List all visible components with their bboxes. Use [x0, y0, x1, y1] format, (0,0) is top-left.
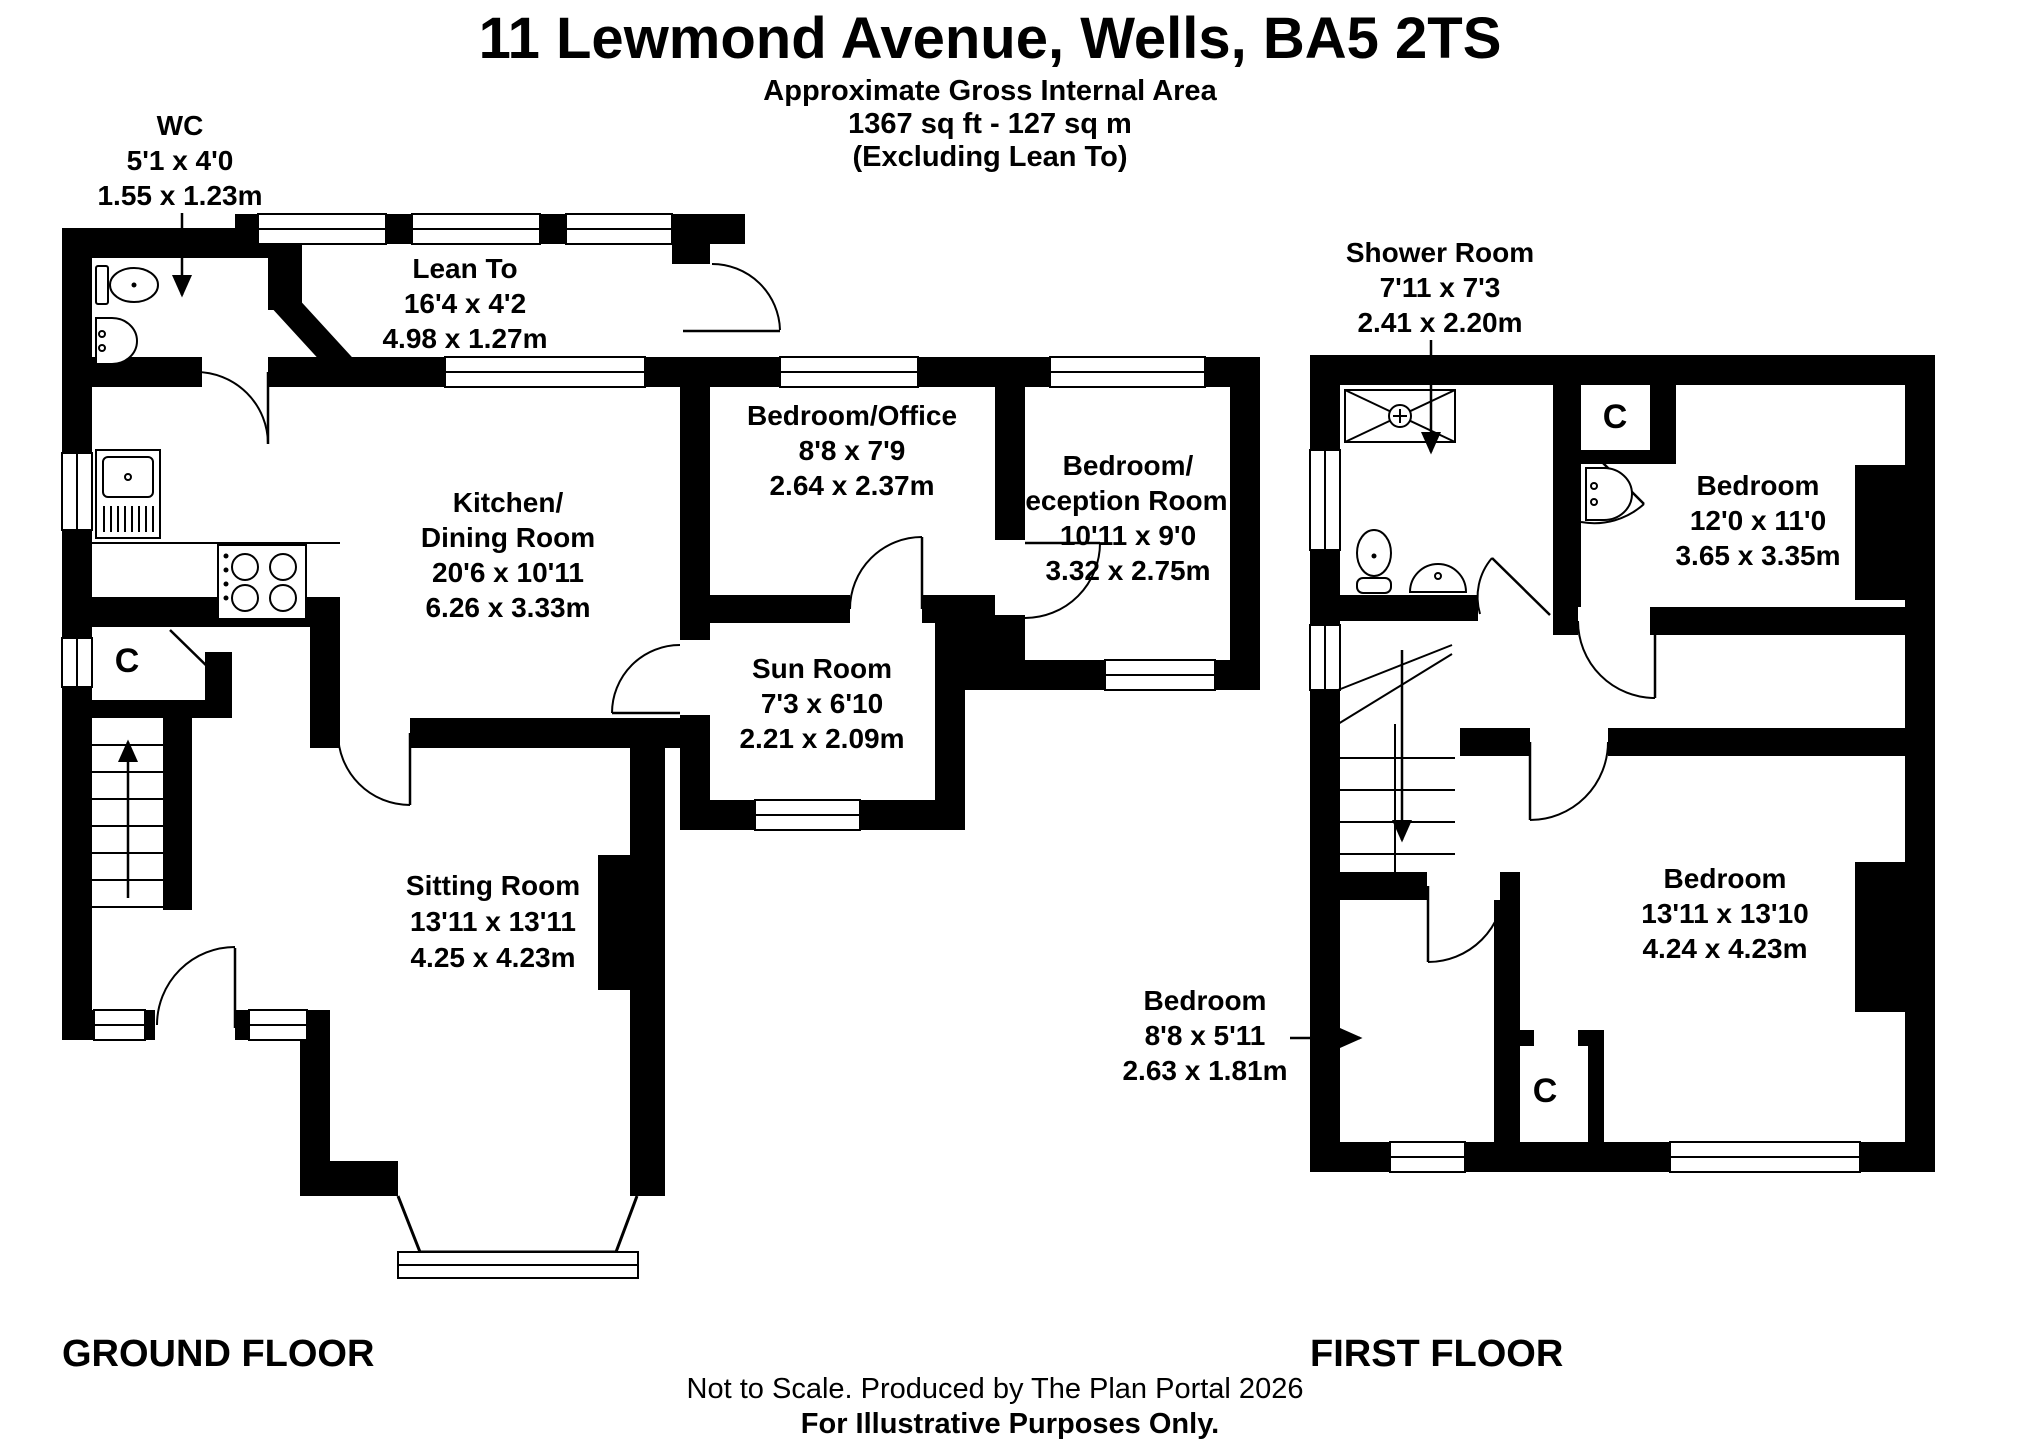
window	[1310, 450, 1340, 550]
door-bedroom-front	[1578, 607, 1655, 698]
first-floor-title: FIRST FLOOR	[1310, 1333, 1563, 1375]
svg-text:4.24 x 4.23m: 4.24 x 4.23m	[1642, 933, 1807, 964]
label-sun-room: Sun Room 7'3 x 6'10 2.21 x 2.09m	[739, 653, 904, 754]
header-area: 1367 sq ft - 127 sq m	[848, 108, 1132, 140]
svg-text:16'4 x 4'2: 16'4 x 4'2	[404, 288, 526, 319]
window	[62, 453, 92, 530]
svg-text:Sun Room: Sun Room	[752, 653, 892, 684]
first-floor-doors	[1427, 452, 1655, 962]
hob-icon	[218, 545, 306, 619]
shower-tray-icon	[1345, 390, 1455, 442]
svg-text:2.21 x 2.09m: 2.21 x 2.09m	[739, 723, 904, 754]
footer: Not to Scale. Produced by The Plan Porta…	[687, 1373, 1304, 1440]
door-bedroom-small	[1427, 872, 1504, 962]
stairs-ground	[92, 742, 163, 907]
footer-disclaimer: Not to Scale. Produced by The Plan Porta…	[687, 1373, 1304, 1405]
window	[445, 357, 645, 387]
kitchen-sink-icon	[96, 450, 160, 538]
svg-text:Bedroom: Bedroom	[1664, 863, 1787, 894]
floorplan-drawing: 11 Lewmond Avenue, Wells, BA5 2TS Approx…	[0, 0, 2025, 1441]
toilet-icon	[1357, 530, 1391, 593]
svg-text:8'8 x 7'9: 8'8 x 7'9	[799, 435, 906, 466]
door-wc	[196, 357, 268, 444]
door-shower-room	[1478, 558, 1553, 621]
ground-floor-title: GROUND FLOOR	[62, 1333, 374, 1375]
svg-text:8'8 x 5'11: 8'8 x 5'11	[1145, 1020, 1266, 1051]
svg-text:5'1 x 4'0: 5'1 x 4'0	[127, 145, 234, 176]
svg-text:10'11 x 9'0: 10'11 x 9'0	[1060, 520, 1196, 551]
label-lean-to: Lean To 16'4 x 4'2 4.98 x 1.27m	[382, 253, 547, 354]
window	[412, 214, 540, 244]
door-bedroom-back	[1530, 728, 1608, 820]
label-bedroom-reception: Bedroom/ Reception Room 2 10'11 x 9'0 3.…	[1005, 450, 1251, 586]
svg-text:Bedroom: Bedroom	[1697, 470, 1820, 501]
window	[1670, 1142, 1860, 1172]
svg-text:7'3 x 6'10: 7'3 x 6'10	[761, 688, 883, 719]
bay-window	[398, 1196, 638, 1278]
svg-text:2.63 x 1.81m: 2.63 x 1.81m	[1122, 1055, 1287, 1086]
window	[1105, 660, 1215, 690]
label-wc: WC 5'1 x 4'0 1.55 x 1.23m	[97, 110, 262, 295]
floorplan-page: 11 Lewmond Avenue, Wells, BA5 2TS Approx…	[0, 0, 2025, 1441]
cupboard-label-first-top: C	[1603, 398, 1628, 436]
page-title: 11 Lewmond Avenue, Wells, BA5 2TS	[479, 6, 1502, 71]
svg-text:Reception Room 2: Reception Room 2	[1005, 485, 1251, 516]
window	[755, 800, 860, 830]
door-kitchen-sunroom	[612, 640, 710, 715]
svg-text:20'6 x 10'11: 20'6 x 10'11	[432, 557, 584, 588]
label-sitting-room: Sitting Room 13'11 x 13'11 4.25 x 4.23m	[406, 870, 580, 973]
svg-text:3.32 x 2.75m: 3.32 x 2.75m	[1045, 555, 1210, 586]
header-subtitle: Approximate Gross Internal Area	[763, 75, 1217, 107]
window	[1050, 357, 1205, 387]
header-exclusion: (Excluding Lean To)	[853, 141, 1128, 173]
cupboard-label-first-bottom: C	[1533, 1072, 1558, 1110]
svg-text:Dining Room: Dining Room	[421, 522, 595, 553]
stairs-first	[1335, 645, 1455, 872]
svg-text:13'11 x 13'11: 13'11 x 13'11	[410, 906, 576, 937]
svg-text:2.64 x 2.37m: 2.64 x 2.37m	[769, 470, 934, 501]
label-kitchen: Kitchen/ Dining Room 20'6 x 10'11 6.26 x…	[421, 487, 595, 623]
svg-text:4.25 x 4.23m: 4.25 x 4.23m	[410, 942, 575, 973]
window	[249, 1010, 307, 1040]
door-kitchen-sitting	[338, 718, 410, 805]
window	[1310, 625, 1340, 690]
svg-text:Bedroom: Bedroom	[1144, 985, 1267, 1016]
sink-icon	[96, 318, 137, 364]
door-front	[155, 947, 235, 1040]
svg-text:7'11 x 7'3: 7'11 x 7'3	[1380, 272, 1501, 303]
door-lean-to	[683, 264, 780, 331]
svg-text:Bedroom/Office: Bedroom/Office	[747, 400, 957, 431]
svg-text:13'11 x 13'10: 13'11 x 13'10	[1641, 898, 1808, 929]
window	[1390, 1142, 1465, 1172]
svg-text:WC: WC	[157, 110, 204, 141]
cupboard-label-ground: C	[115, 642, 140, 680]
window	[94, 1010, 145, 1040]
toilet-icon	[96, 266, 158, 304]
svg-text:4.98 x 1.27m: 4.98 x 1.27m	[382, 323, 547, 354]
svg-text:12'0 x 11'0: 12'0 x 11'0	[1690, 505, 1826, 536]
window	[62, 638, 92, 687]
label-bedroom-back: Bedroom 13'11 x 13'10 4.24 x 4.23m	[1641, 863, 1808, 964]
window	[780, 357, 918, 387]
svg-text:6.26 x 3.33m: 6.26 x 3.33m	[425, 592, 590, 623]
bedroom-sink-icon	[1586, 468, 1632, 520]
svg-text:1.55 x 1.23m: 1.55 x 1.23m	[97, 180, 262, 211]
header: 11 Lewmond Avenue, Wells, BA5 2TS Approx…	[479, 6, 1502, 173]
door-office	[850, 537, 922, 623]
footer-illustrative: For Illustrative Purposes Only.	[801, 1408, 1219, 1440]
label-bedroom-front: Bedroom 12'0 x 11'0 3.65 x 3.35m	[1675, 470, 1840, 571]
svg-text:2.41 x 2.20m: 2.41 x 2.20m	[1357, 307, 1522, 338]
svg-text:Shower Room: Shower Room	[1346, 237, 1534, 268]
window	[258, 214, 386, 244]
svg-text:Sitting Room: Sitting Room	[406, 870, 580, 901]
window	[566, 214, 672, 244]
svg-text:Lean To: Lean To	[412, 253, 517, 284]
label-bedroom-office: Bedroom/Office 8'8 x 7'9 2.64 x 2.37m	[747, 400, 957, 501]
sink-icon	[1410, 564, 1466, 592]
svg-text:3.65 x 3.35m: 3.65 x 3.35m	[1675, 540, 1840, 571]
svg-text:Bedroom/: Bedroom/	[1063, 450, 1194, 481]
svg-text:Kitchen/: Kitchen/	[453, 487, 564, 518]
